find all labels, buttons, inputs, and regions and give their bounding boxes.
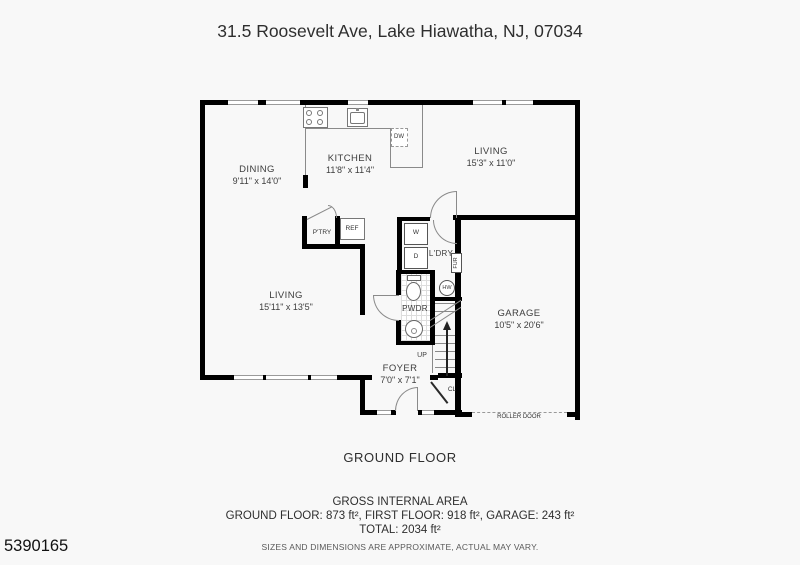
page-title: 31.5 Roosevelt Ave, Lake Hiawatha, NJ, 0… bbox=[0, 21, 800, 42]
wall bbox=[533, 100, 580, 105]
room-dims: 15'11" x 13'5" bbox=[259, 302, 313, 312]
up-arrow-icon bbox=[443, 321, 451, 330]
listing-id: 5390165 bbox=[4, 537, 68, 556]
window bbox=[473, 100, 502, 105]
room-dims: 7'0" x 7'1" bbox=[380, 375, 419, 385]
wall bbox=[360, 244, 365, 315]
stair-tread bbox=[435, 343, 455, 344]
disclaimer-text: SIZES AND DIMENSIONS ARE APPROXIMATE, AC… bbox=[0, 542, 800, 552]
room-name: KITCHEN bbox=[326, 153, 374, 164]
furnace-label: FUR bbox=[453, 257, 459, 268]
window bbox=[266, 100, 300, 105]
toilet-tank-icon bbox=[407, 275, 421, 281]
powder-room-label: PWDR bbox=[402, 304, 428, 313]
room-dims: 10'5" x 20'6" bbox=[494, 320, 543, 330]
window bbox=[348, 100, 368, 105]
dryer-label: D bbox=[414, 253, 419, 260]
living-door-arc bbox=[430, 191, 457, 218]
basin-drain-icon bbox=[411, 328, 417, 334]
burner-icon bbox=[317, 119, 323, 125]
pantry-label: P'TRY bbox=[313, 229, 331, 236]
room-dims: 9'11" x 14'0" bbox=[233, 176, 282, 186]
wall bbox=[300, 100, 348, 105]
dishwasher-label: DW bbox=[394, 134, 404, 140]
wall bbox=[258, 100, 266, 105]
burner-icon bbox=[306, 110, 312, 116]
area-total: TOTAL: 2034 ft² bbox=[0, 524, 800, 536]
wall bbox=[360, 375, 365, 415]
burner-icon bbox=[306, 119, 312, 125]
room-label-dining: DINING 9'11" x 14'0" bbox=[233, 164, 282, 186]
room-label-living-main: LIVING 15'11" x 13'5" bbox=[259, 290, 313, 312]
burner-icon bbox=[317, 110, 323, 116]
stair-tread bbox=[435, 359, 455, 360]
counter-edge bbox=[305, 128, 390, 129]
wall bbox=[397, 217, 402, 272]
room-label-garage: GARAGE 10'5" x 20'6" bbox=[494, 308, 543, 330]
laundry-label: L'DRY bbox=[429, 249, 453, 258]
powder-door-arc bbox=[373, 295, 399, 321]
stair-tread bbox=[435, 351, 455, 352]
room-label-kitchen: KITCHEN 11'8" x 11'4" bbox=[326, 153, 374, 175]
room-dims: 15'3" x 11'0" bbox=[467, 158, 516, 168]
stairs-up-label: UP bbox=[417, 352, 427, 359]
powder-door-leaf bbox=[373, 295, 399, 296]
front-door-arc bbox=[395, 387, 418, 411]
living-door-leaf bbox=[456, 191, 457, 218]
washer-label: W bbox=[413, 229, 419, 236]
room-name: LIVING bbox=[467, 146, 516, 157]
toilet-icon bbox=[406, 282, 421, 301]
area-breakdown: GROUND FLOOR: 873 ft², FIRST FLOOR: 918 … bbox=[0, 510, 800, 522]
room-label-foyer: FOYER 7'0" x 7'1" bbox=[380, 363, 419, 385]
room-name: FOYER bbox=[380, 363, 419, 374]
counter-edge bbox=[422, 105, 423, 167]
wall bbox=[303, 175, 308, 188]
wall bbox=[200, 100, 205, 380]
closet-door-leaf bbox=[430, 381, 448, 404]
wall bbox=[360, 410, 377, 415]
room-dims: 11'8" x 11'4" bbox=[326, 165, 374, 175]
gross-internal-area-heading: GROSS INTERNAL AREA bbox=[0, 496, 800, 508]
room-label-living-upper: LIVING 15'3" x 11'0" bbox=[467, 146, 516, 168]
window bbox=[234, 375, 263, 380]
window bbox=[228, 100, 258, 105]
wall bbox=[567, 412, 580, 417]
roller-door-label: ROLLER DOOR bbox=[497, 414, 541, 420]
room-name: GARAGE bbox=[494, 308, 543, 319]
window bbox=[422, 410, 434, 415]
sink-basin-icon bbox=[350, 112, 365, 124]
wall bbox=[430, 375, 438, 380]
closet-label: CL bbox=[448, 386, 456, 393]
counter-edge bbox=[390, 167, 423, 168]
floorplan: ROLLER DOOR DW P'TRY REF W D L'DRY FUR H… bbox=[200, 98, 580, 420]
wall bbox=[368, 100, 473, 105]
up-arrow-shaft bbox=[446, 330, 448, 376]
wall bbox=[430, 270, 435, 345]
wall bbox=[453, 215, 580, 220]
room-name: LIVING bbox=[259, 290, 313, 301]
wall bbox=[575, 100, 580, 420]
fridge-label: REF bbox=[346, 225, 359, 232]
wall bbox=[200, 375, 234, 380]
stair-tread bbox=[435, 303, 455, 304]
wall bbox=[302, 244, 365, 249]
wall bbox=[438, 373, 462, 378]
window bbox=[266, 375, 308, 380]
stair-rail-line bbox=[432, 345, 433, 373]
stair-tread bbox=[435, 335, 455, 336]
faucet-icon bbox=[356, 108, 359, 111]
front-door-leaf bbox=[417, 387, 418, 411]
stair-tread bbox=[435, 367, 455, 368]
window bbox=[311, 375, 337, 380]
room-name: DINING bbox=[233, 164, 282, 175]
wall bbox=[337, 375, 372, 380]
window bbox=[377, 410, 391, 415]
water-heater-label: HW bbox=[442, 285, 451, 291]
floor-label: GROUND FLOOR bbox=[0, 450, 800, 465]
laundry-door-arc bbox=[433, 220, 457, 244]
pantry-door-arc bbox=[328, 205, 337, 218]
window bbox=[506, 100, 533, 105]
